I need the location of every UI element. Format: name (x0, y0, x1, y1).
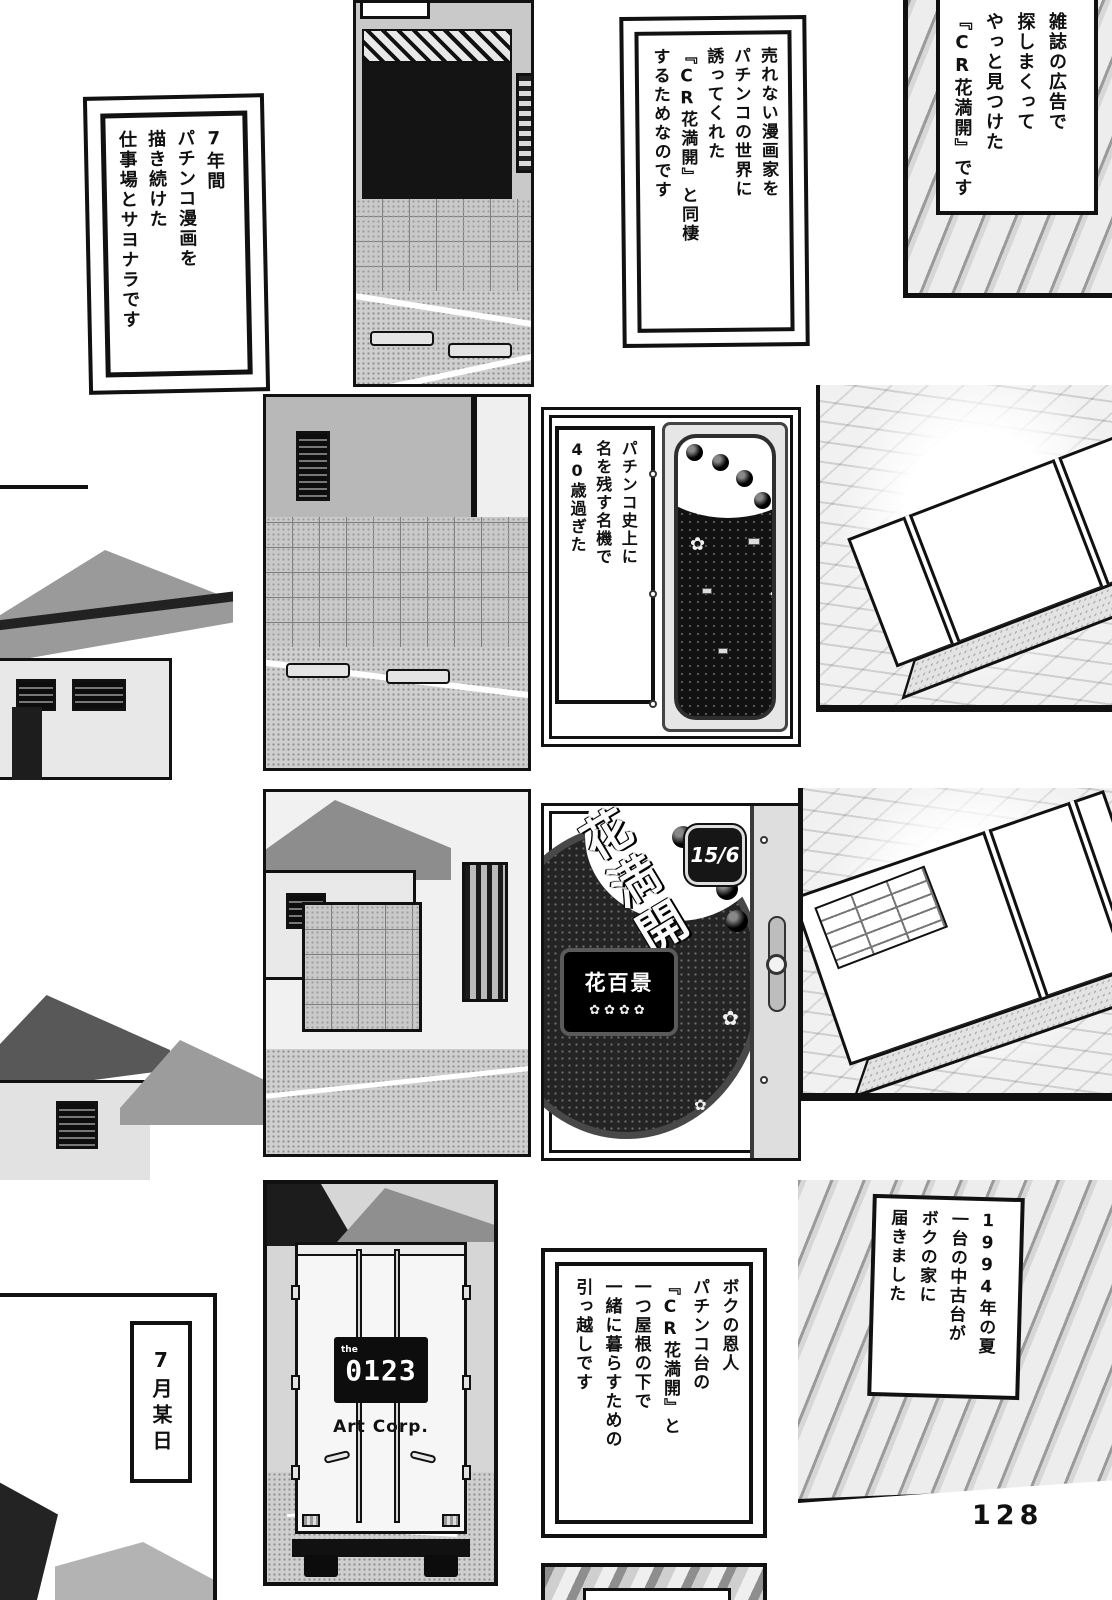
panel-houses-street (263, 789, 531, 1157)
panel-moving-truck: the 0123 Art Corp. (263, 1180, 498, 1586)
house-wall (0, 1080, 150, 1180)
lamp (702, 588, 712, 594)
wheel-stop (448, 343, 512, 358)
latch-handle (409, 1450, 436, 1464)
panel-border-fragment (0, 485, 88, 489)
tail-light (302, 1514, 320, 1527)
building-wall (266, 397, 471, 517)
hinge (291, 1285, 300, 1300)
machine-spec-badge: 15/6 (688, 828, 742, 882)
caption-box: ボクの恩人 パチンコ台の 『CR花満開』と 一つ屋根の下で 一緒に暮らすための … (555, 1262, 753, 1524)
screw-icon (760, 836, 768, 844)
caption-goodbye: 7年間 パチンコ漫画を 描き続けた 仕事場とサヨナラです (112, 128, 233, 330)
block-wall (302, 902, 422, 1032)
parking-lot (356, 291, 531, 387)
screw-icon (649, 470, 657, 478)
screw-icon (649, 590, 657, 598)
pachinko-ball (754, 492, 771, 509)
flower-icon: ✿ (722, 1006, 739, 1030)
machine-side-rail (750, 806, 798, 1158)
machine-playfield: ✿ ✿ (674, 434, 776, 720)
caption-date: 7月某日 (151, 1348, 171, 1456)
phone-number-plate: the 0123 (334, 1337, 428, 1403)
pachinko-ball (686, 444, 703, 461)
wheel-stop (386, 669, 450, 684)
caption-box: 1994年の夏 一台の中古台が ボクの家に 届きました (867, 1194, 1025, 1400)
panel-box-with-label (798, 788, 1112, 1101)
phone-number: 0123 (345, 1354, 416, 1387)
caption-box: 7年間 パチンコ漫画を 描き続けた 仕事場とサヨナラです (100, 110, 252, 377)
page-number: 128 (972, 1500, 1043, 1531)
wrapped-machine-box (847, 435, 1112, 698)
street (266, 1049, 528, 1154)
parking-line (353, 292, 534, 332)
pachinko-ball (726, 910, 748, 932)
caption-cohabit: 売れない漫画家を パチンコの世界に 誘ってくれた 『CR花満開』と同棲 するため… (646, 46, 782, 243)
hinge (462, 1465, 471, 1480)
truck-roof-edge (298, 1245, 464, 1256)
panel-cohabit-reason: 売れない漫画家を パチンコの世界に 誘ってくれた 『CR花満開』と同棲 するため… (619, 15, 809, 348)
garage-opening (362, 63, 512, 199)
lamp (718, 648, 728, 654)
panel-machine-closeup: 花満開 15/6 花百景 ✿✿✿✿ ✿ ✿ (541, 803, 801, 1161)
shuttered-window (296, 431, 330, 501)
panel-pachinko-machine: パチンコ史上に 名を残す名機で 40歳過ぎた ✿ ✿ (541, 407, 801, 747)
flower-icon: ✿ (690, 534, 705, 555)
lamp (748, 538, 760, 545)
hinge (291, 1375, 300, 1390)
caption-famous-machine: パチンコ史上に 名を残す名機で 40歳過ぎた (564, 440, 641, 566)
caption-moving: ボクの恩人 パチンコ台の 『CR花満開』と 一つ屋根の下で 一緒に暮らすための … (567, 1278, 742, 1449)
packing-strap (1067, 799, 1112, 971)
latch-handle (323, 1450, 350, 1464)
packing-strap (1052, 457, 1111, 589)
shuttered-window (516, 73, 534, 173)
panel-moving-reason: ボクの恩人 パチンコ台の 『CR花満開』と 一つ屋根の下で 一緒に暮らすための … (541, 1248, 767, 1538)
shuttered-window (56, 1101, 98, 1149)
caption-box-peek (583, 1588, 731, 1600)
packing-strap (902, 514, 961, 646)
caption-1994: 1994年の夏 一台の中古台が ボクの家に 届きました (878, 1208, 1003, 1356)
tail-light (442, 1514, 460, 1527)
caption-box: 雑誌の広告で 探しまくって やっと見つけた 『CR花満開』です (936, 0, 1098, 215)
screw-icon (760, 1076, 768, 1084)
pachinko-ball (712, 454, 729, 471)
gate (462, 862, 508, 1002)
parking-lot (266, 647, 528, 771)
caption-box: 売れない漫画家を パチンコの世界に 誘ってくれた 『CR花満開』と同棲 するため… (634, 30, 794, 333)
handle-knob (766, 954, 787, 975)
machine-frame: ✿ ✿ (662, 422, 788, 732)
wrapped-machine-box (798, 790, 1112, 1096)
packing-strap (982, 829, 1049, 1001)
panel-goodbye-workplace: 7年間 パチンコ漫画を 描き続けた 仕事場とサヨナラです (83, 93, 270, 395)
panel-date: 7月某日 (0, 1293, 217, 1600)
tiled-wall (266, 517, 528, 647)
logo-prefix: the (341, 1345, 358, 1355)
window (72, 679, 126, 711)
house-roof (55, 1542, 215, 1600)
panel-next-page-peek (541, 1563, 767, 1600)
pachinko-ball (736, 470, 753, 487)
flower-icon: ✿ (694, 1096, 707, 1114)
tire (304, 1555, 338, 1577)
panel-magazine-ad: 雑誌の広告で 探しまくって やっと見つけた 『CR花満開』です (903, 0, 1112, 298)
tire (424, 1555, 458, 1577)
panel-1994-delivery: 1994年の夏 一台の中古台が ボクの家に 届きました (798, 1180, 1112, 1503)
truck-rear: the 0123 Art Corp. (295, 1242, 467, 1534)
panel-border (798, 1485, 1112, 1503)
panel-box-arrives (816, 385, 1112, 712)
panel-house-parking (263, 394, 531, 771)
wheel-stop (370, 331, 434, 346)
screw-icon (649, 700, 657, 708)
panel-houses-left (0, 985, 263, 1180)
shipping-label (814, 865, 948, 969)
hinge (462, 1375, 471, 1390)
flower-reels: ✿✿✿✿ (589, 1003, 649, 1018)
rooftop-structure (360, 0, 430, 19)
manga-page: 7年間 パチンコ漫画を 描き続けた 仕事場とサヨナラです 売れない漫画家を パチ… (0, 0, 1112, 1600)
tiled-wall (356, 199, 531, 291)
hinge (462, 1285, 471, 1300)
awning (362, 29, 512, 63)
display-text: 花百景 (585, 967, 654, 997)
wheel-stop (286, 663, 350, 678)
caption-magazine: 雑誌の広告で 探しまくって やっと見つけた 『CR花満開』です (946, 12, 1072, 198)
background-roof (337, 1188, 497, 1242)
company-name: Art Corp. (298, 1417, 464, 1437)
house-wall (0, 658, 172, 780)
caption-box: 7月某日 (130, 1321, 192, 1483)
panel-house-exterior-left (0, 430, 233, 780)
caption-box: パチンコ史上に 名を残す名機で 40歳過ぎた (555, 426, 655, 704)
door (12, 707, 42, 780)
flower-icon: ✿ (770, 588, 776, 603)
center-display: 花百景 ✿✿✿✿ (560, 948, 678, 1036)
panel-house-exterior-top (353, 0, 534, 387)
hinge (291, 1465, 300, 1480)
house-roof (263, 800, 451, 880)
